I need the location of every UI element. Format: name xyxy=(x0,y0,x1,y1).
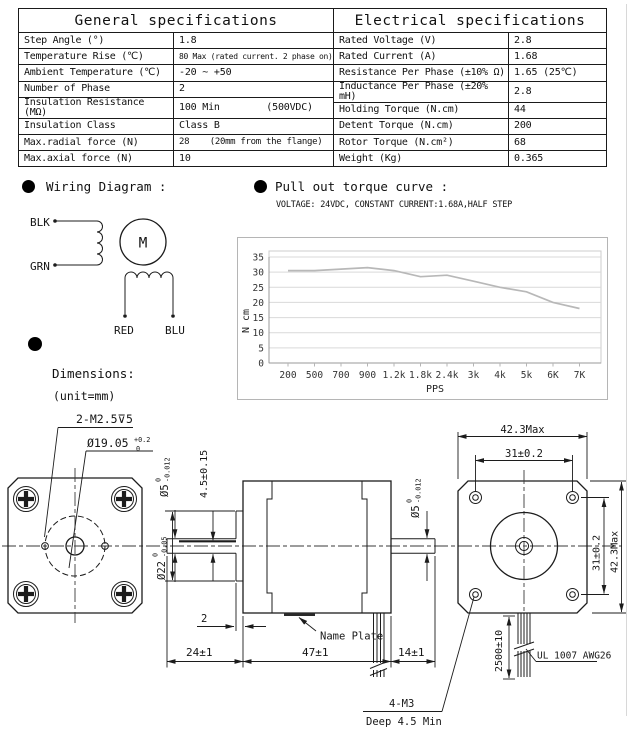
shaft-dimension-labels: Ø5 0 -0.012 4.5±0.15 Ø22 0 -0.05 Ø5 0 xyxy=(152,450,428,582)
mounting-hole xyxy=(470,589,482,601)
tap-callout: 2-M2.5⊽5 xyxy=(76,412,133,426)
corner-screw xyxy=(14,487,39,512)
wire-label-blk: BLK xyxy=(30,216,50,229)
hole-pitch-v-dim: 31±0.2 xyxy=(592,535,603,571)
front-shaft-dia-dim: Ø5 xyxy=(159,484,171,497)
motor-datasheet-page: General specifications Step Angle (°)1.8… xyxy=(0,0,630,737)
wire-label-grn: GRN xyxy=(30,260,50,273)
phase-a-coil xyxy=(97,221,103,265)
rear-tap-depth-callout: Deep 4.5 Min xyxy=(366,716,442,728)
mounting-hole xyxy=(567,492,579,504)
boss-thickness-dim: 2 xyxy=(201,613,207,625)
wiring-diagram: BLK GRN M RED BLU xyxy=(30,216,185,337)
pilot-dia-callout: Ø19.05 xyxy=(87,436,129,450)
wire-label-red: RED xyxy=(114,324,134,337)
boss-dia-lower-tol: -0.05 xyxy=(161,537,169,557)
pilot-dia-lower-tol: 0 xyxy=(136,445,140,453)
corner-screw xyxy=(112,582,137,607)
rear-shaft-length-dim: 14±1 xyxy=(398,646,425,659)
rear-shaft-dia-dim: Ø5 xyxy=(410,505,422,518)
wire-label-blu: BLU xyxy=(165,324,185,337)
name-plate-strip xyxy=(284,613,315,617)
mounting-hole xyxy=(567,589,579,601)
mounting-hole xyxy=(470,492,482,504)
front-shaft-dia-lower-tol: -0.012 xyxy=(164,457,172,482)
front-shaft-length-dim: 24±1 xyxy=(186,646,213,659)
pilot-dia-upper-tol: +0.2 xyxy=(134,436,150,444)
corner-screw xyxy=(14,582,39,607)
rear-tap-callout: 4-M3 xyxy=(389,698,414,710)
name-plate-callout: Name Plate xyxy=(320,631,383,643)
shaft-flat-dim: 4.5±0.15 xyxy=(199,450,210,498)
boss-dia-upper-tol: 0 xyxy=(152,553,160,557)
boss-dia-dim: Ø22 xyxy=(156,561,168,580)
lead-wires-rear xyxy=(514,613,534,677)
rear-view: 42.3Max 31±0.2 31±0.2 42.3Max xyxy=(458,424,626,679)
technical-drawings: BLK GRN M RED BLU xyxy=(0,0,630,737)
front-view: 2-M2.5⊽5 Ø19.05 +0.2 0 xyxy=(8,412,153,623)
lead-length-dim: 2500±10 xyxy=(494,630,505,672)
motor-symbol-label: M xyxy=(139,236,148,252)
lead-wires-side xyxy=(370,613,387,677)
front-shaft-dia-upper-tol: 0 xyxy=(155,478,163,482)
rear-shaft-dia-upper-tol: 0 xyxy=(406,499,414,503)
lead-spec-callout: UL 1007 AWG26 xyxy=(537,651,612,662)
rear-shaft-dia-lower-tol: -0.012 xyxy=(415,478,423,503)
corner-screw xyxy=(112,487,137,512)
frame-width-dim: 42.3Max xyxy=(500,424,544,436)
body-length-dim: 47±1 xyxy=(302,646,329,659)
hole-pitch-h-dim: 31±0.2 xyxy=(505,448,543,460)
frame-height-dim: 42.3Max xyxy=(610,531,621,573)
phase-b-coil xyxy=(125,272,173,278)
